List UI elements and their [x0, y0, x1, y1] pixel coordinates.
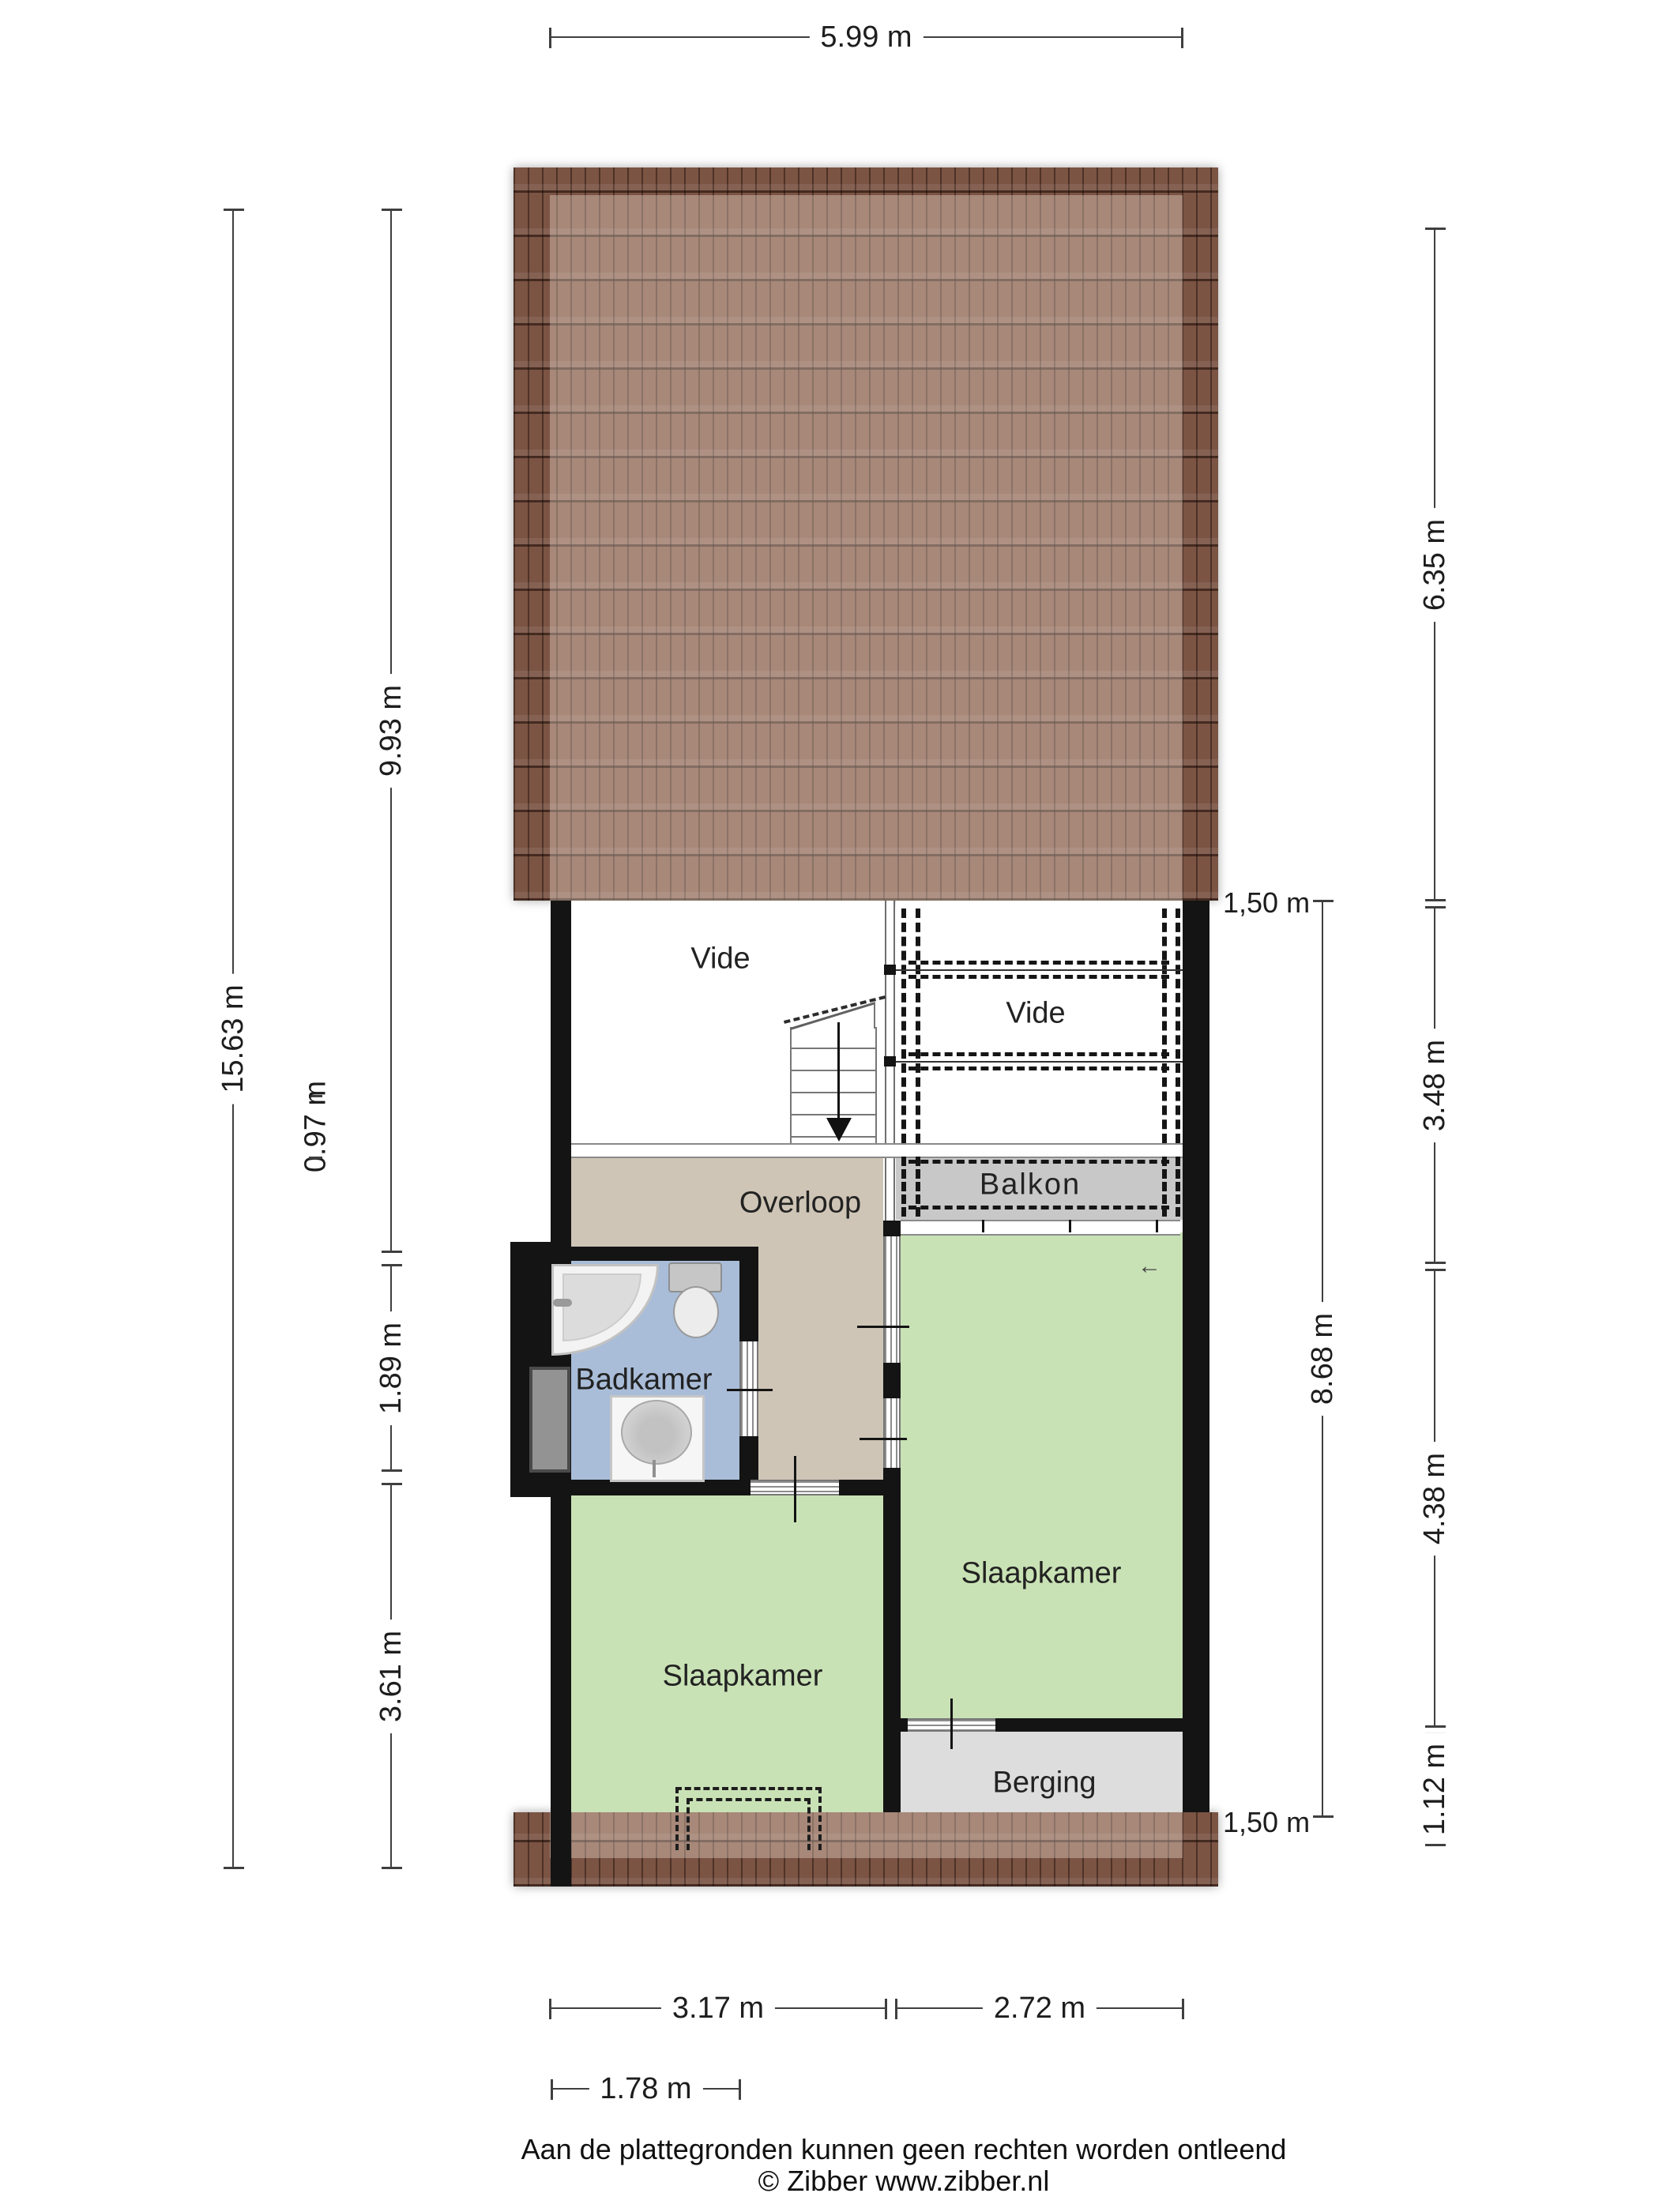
dimension-label: 3.61 m	[374, 1619, 410, 1732]
wall-badkamer-right-upper	[739, 1261, 758, 1341]
room-label-vide-left: Vide	[690, 942, 750, 976]
toilet-bowl	[673, 1286, 719, 1338]
sink-basin	[621, 1400, 692, 1465]
vide-dashed-border	[1176, 908, 1180, 1143]
dimension-left-upper: 9.93 m	[390, 209, 392, 1252]
dimension-label: 15.63 m	[216, 973, 252, 1104]
balkon-dashed-border	[1176, 1157, 1180, 1217]
door-overloop-slaapkamer-a	[883, 1236, 901, 1363]
divider-post	[884, 965, 896, 975]
balkon-dashed-border	[908, 1206, 1169, 1209]
dimension-right-roof-upper: 6.35 m	[1434, 228, 1435, 901]
window-band-balkon-slaapkamer	[901, 1220, 1180, 1236]
dimension-label: 3.17 m	[661, 1991, 775, 2027]
wall-right	[1183, 901, 1209, 1812]
dimension-left-lower: 3.61 m	[390, 1484, 392, 1868]
window-mullion	[1069, 1220, 1071, 1232]
roof-top	[513, 167, 1218, 901]
door-tick	[727, 1389, 773, 1391]
divider-post	[884, 1056, 896, 1066]
dimension-bottom-right: 2.72 m	[896, 2007, 1183, 2009]
door-tick	[860, 1438, 907, 1440]
roof-bottom-footprint-overlay	[550, 1812, 1183, 1858]
vide-dashed-border	[916, 908, 920, 1143]
vide-batten-dash	[908, 1052, 1169, 1056]
room-slaapkamer-left	[571, 1495, 883, 1812]
wall-badkamer-bottom	[510, 1480, 750, 1495]
roof-top-footprint-overlay	[550, 195, 1183, 901]
room-slaapkamer-right	[901, 1232, 1183, 1718]
dimension-label: 3.48 m	[1417, 1028, 1454, 1142]
dimension-label: 4.38 m	[1417, 1441, 1454, 1555]
door-tick	[857, 1326, 909, 1328]
vide-batten-dash	[908, 975, 1169, 979]
roofline-height-label-top: 1,50 m	[1223, 886, 1310, 920]
dimension-small-tick	[309, 1157, 322, 1159]
window-opening-arrow-icon: ←	[1138, 1253, 1161, 1280]
window-mullion	[1156, 1220, 1158, 1232]
wall-badkamer-top	[548, 1247, 758, 1261]
room-label-overloop: Overloop	[739, 1187, 861, 1221]
room-label-berging: Berging	[993, 1766, 1097, 1800]
dimension-label: 9.93 m	[374, 674, 410, 788]
footer-disclaimer: Aan de plattegronden kunnen geen rechten…	[521, 2133, 1287, 2166]
roofline-height-label-bottom: 1,50 m	[1223, 1806, 1310, 1839]
vide-batten-dash	[908, 961, 1169, 965]
dimension-top-width: 5.99 m	[550, 36, 1183, 38]
sink-tap-icon	[653, 1460, 656, 1477]
dimension-label: 1.12 m	[1417, 1732, 1454, 1846]
stairs-direction-shaft	[837, 1022, 840, 1122]
dimension-label: 6.35 m	[1417, 507, 1454, 621]
window-mullion	[982, 1220, 984, 1232]
vide-batten-dash	[908, 1066, 1169, 1070]
room-label-slaapkamer-right: Slaapkamer	[961, 1557, 1122, 1591]
vide-dashed-border	[1162, 908, 1167, 1143]
vide-batten-line	[896, 969, 1183, 971]
dimension-left-total: 15.63 m	[232, 209, 234, 1868]
floorplan-canvas: ← Vide Vide Overloop Badkamer Balkon Sla…	[0, 0, 1659, 2212]
wall-badkamer-right-lower	[739, 1436, 758, 1480]
balkon-dashed-border	[901, 1157, 906, 1217]
dimension-bottom-bathroom: 1.78 m	[551, 2088, 740, 2090]
dimension-right-inner-total: 8.68 m	[1322, 901, 1323, 1817]
room-label-badkamer: Badkamer	[575, 1364, 712, 1398]
dimension-right-roof-lower: 3.48 m	[1434, 907, 1435, 1263]
vide-dashed-border	[901, 908, 906, 1143]
dimension-label: 2.72 m	[983, 1991, 1097, 2027]
footer-copyright: © Zibber www.zibber.nl	[758, 2165, 1050, 2198]
shower-faucet-icon	[553, 1299, 572, 1307]
wall-overloop-bottom-right	[839, 1480, 883, 1495]
dimension-left-bathroom: 1.89 m	[390, 1265, 392, 1471]
dimension-bottom-left: 3.17 m	[550, 2007, 886, 2009]
dimension-right-bedroom: 4.38 m	[1434, 1270, 1435, 1727]
room-label-slaapkamer-left: Slaapkamer	[663, 1660, 823, 1694]
door-overloop-slaapkamer-b	[883, 1398, 901, 1468]
room-label-vide-right: Vide	[1006, 997, 1065, 1031]
window-tick	[950, 1698, 953, 1749]
dimension-label: 1.89 m	[374, 1311, 410, 1424]
dimension-label: 8.68 m	[1305, 1302, 1341, 1416]
balkon-dashed-border	[908, 1160, 1169, 1164]
window-band-vide-south	[571, 1143, 1183, 1158]
door-tick	[794, 1456, 796, 1522]
vide-batten-line	[896, 1061, 1183, 1063]
dormer-dashed-inner	[687, 1798, 811, 1850]
dimension-label: 1.78 m	[589, 2071, 702, 2108]
dimension-right-storage: 1.12 m	[1434, 1733, 1435, 1845]
roof-bottom-strip	[513, 1812, 1218, 1887]
stairs-down-arrow-icon	[826, 1118, 852, 1142]
duct-niche	[529, 1367, 570, 1473]
dimension-label: 5.99 m	[809, 20, 923, 56]
room-label-balkon: Balkon	[980, 1168, 1081, 1202]
